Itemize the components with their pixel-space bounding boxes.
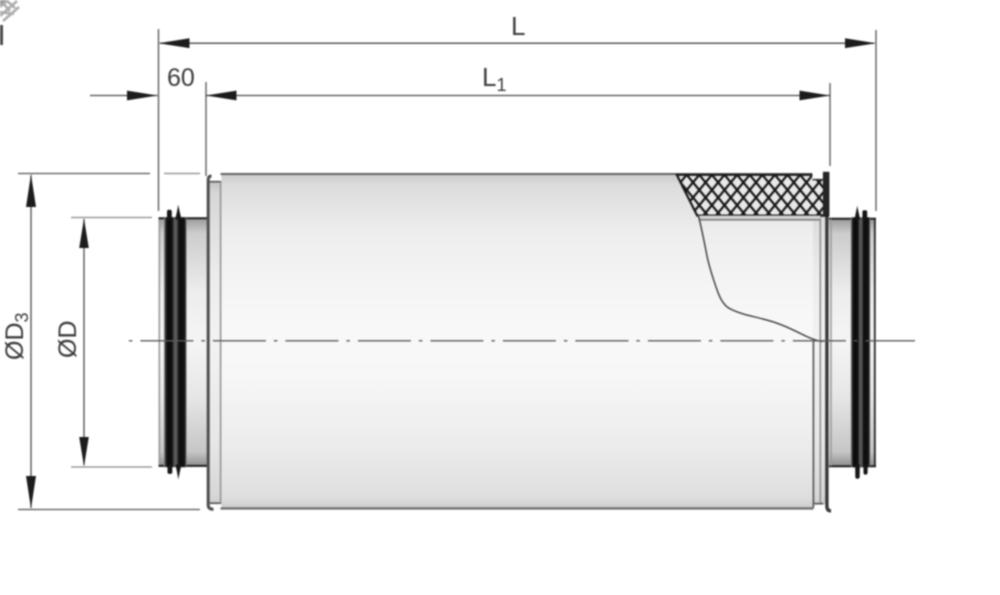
svg-text:L: L — [511, 11, 525, 41]
svg-text:ØD: ØD — [54, 321, 82, 359]
svg-text:60: 60 — [167, 64, 195, 92]
svg-text:ØD3: ØD3 — [1, 312, 32, 360]
svg-text:L1: L1 — [482, 62, 506, 95]
